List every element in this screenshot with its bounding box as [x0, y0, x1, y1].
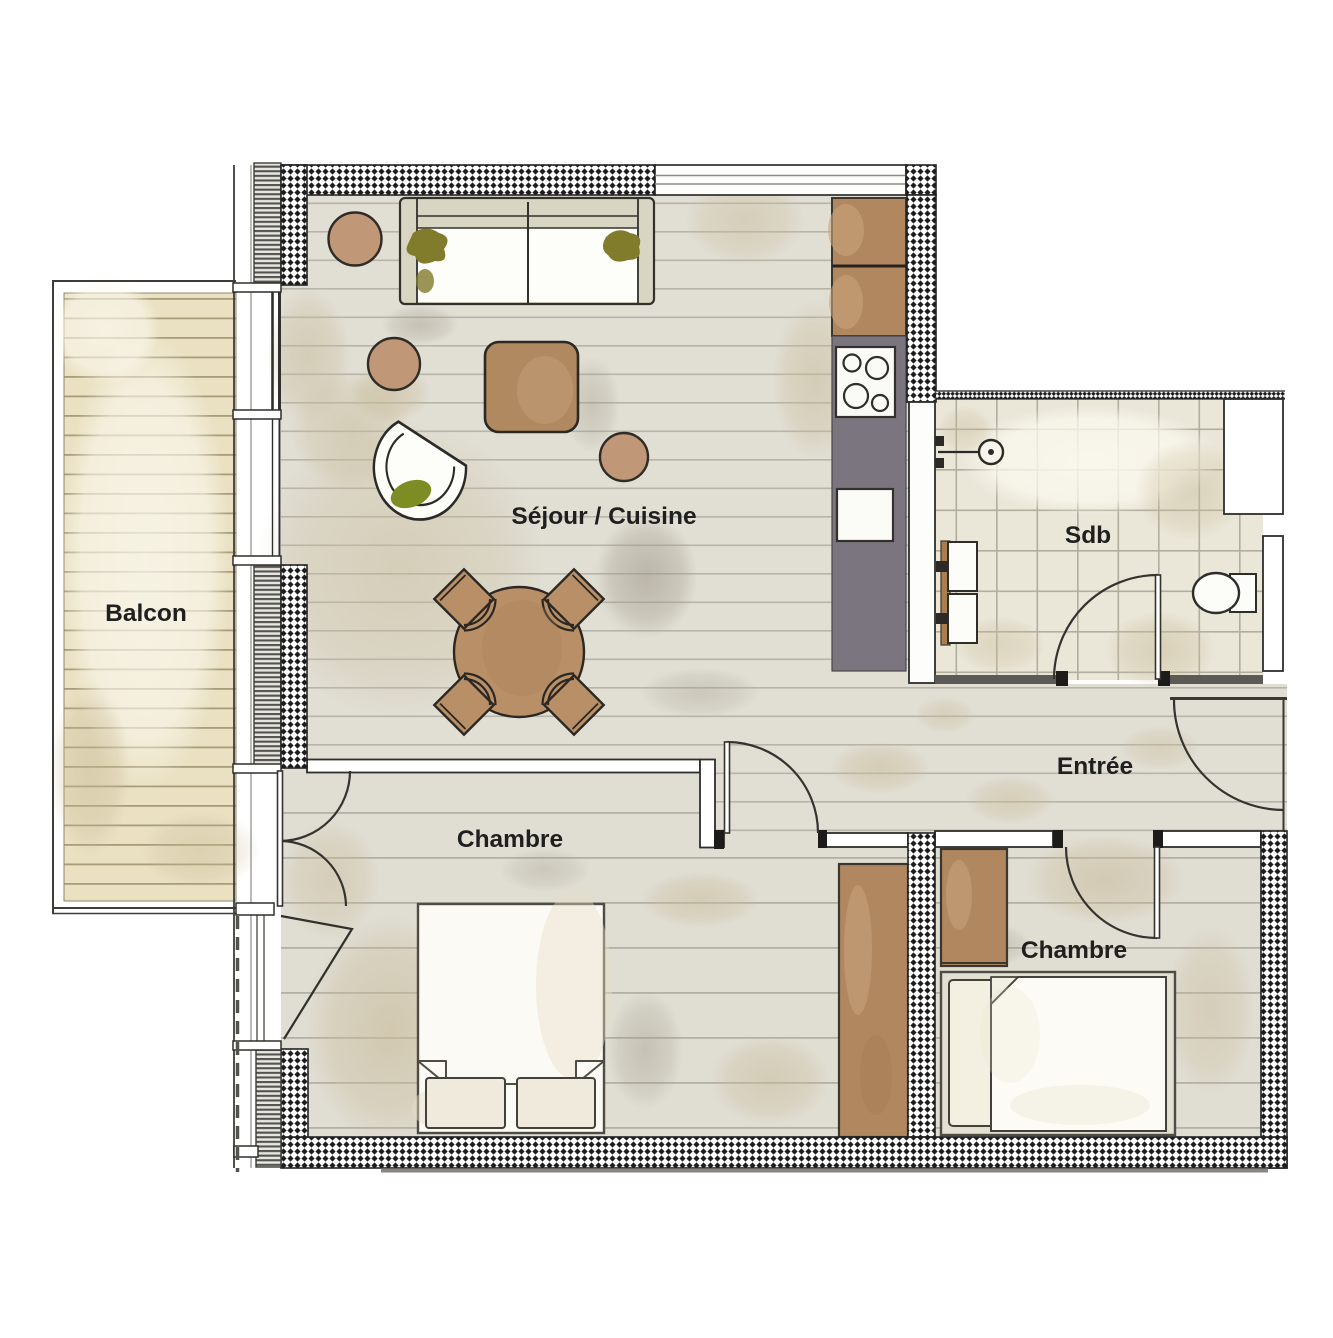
svg-text:Chambre: Chambre: [1021, 937, 1127, 964]
svg-text:Balcon: Balcon: [105, 600, 187, 627]
svg-text:Chambre: Chambre: [457, 826, 563, 853]
svg-text:Séjour / Cuisine: Séjour / Cuisine: [511, 503, 696, 530]
svg-text:Sdb: Sdb: [1065, 522, 1111, 549]
svg-text:Entrée: Entrée: [1057, 753, 1133, 780]
